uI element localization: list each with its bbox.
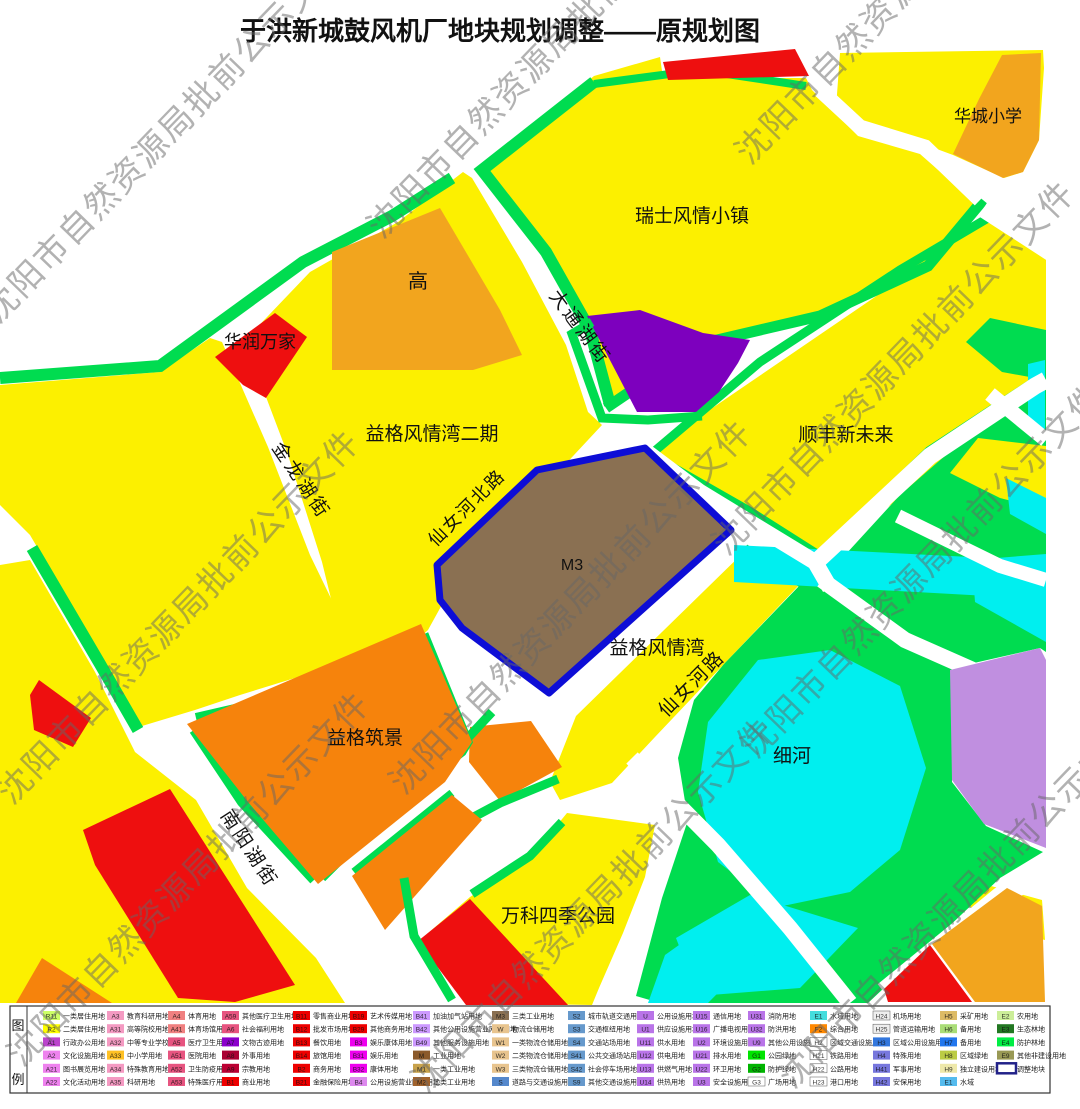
svg-text:机场用地: 机场用地 bbox=[893, 1012, 921, 1021]
svg-text:备用地: 备用地 bbox=[960, 1025, 981, 1034]
svg-text:图书展览用地: 图书展览用地 bbox=[63, 1064, 105, 1073]
svg-text:A6: A6 bbox=[227, 1027, 235, 1034]
svg-text:城市轨道交通用地: 城市轨道交通用地 bbox=[588, 1012, 644, 1021]
svg-text:零售商业用地: 零售商业用地 bbox=[313, 1012, 355, 1021]
svg-text:医院用地: 医院用地 bbox=[188, 1051, 216, 1060]
svg-text:港口用地: 港口用地 bbox=[830, 1078, 858, 1087]
svg-text:社会福利用地: 社会福利用地 bbox=[242, 1025, 284, 1034]
svg-text:S41: S41 bbox=[571, 1053, 583, 1060]
svg-text:金融保险用地: 金融保险用地 bbox=[313, 1078, 355, 1087]
svg-text:B3: B3 bbox=[355, 1040, 363, 1047]
svg-text:G2: G2 bbox=[752, 1066, 761, 1073]
svg-text:U11: U11 bbox=[640, 1040, 652, 1047]
svg-text:公共交通场站用地: 公共交通场站用地 bbox=[588, 1051, 644, 1060]
svg-text:E4: E4 bbox=[1002, 1040, 1010, 1047]
svg-text:细河: 细河 bbox=[773, 745, 811, 767]
svg-text:A2: A2 bbox=[48, 1053, 56, 1060]
svg-text:其他非建设用地: 其他非建设用地 bbox=[1017, 1051, 1066, 1060]
svg-text:独立建设用地: 独立建设用地 bbox=[960, 1064, 1002, 1073]
svg-text:U: U bbox=[643, 1014, 648, 1021]
svg-text:交通站场用地: 交通站场用地 bbox=[588, 1038, 630, 1047]
svg-text:B2: B2 bbox=[298, 1066, 306, 1073]
svg-text:U2: U2 bbox=[697, 1040, 706, 1047]
svg-text:U9: U9 bbox=[752, 1040, 761, 1047]
svg-text:A4: A4 bbox=[173, 1014, 181, 1021]
svg-text:华润万家: 华润万家 bbox=[224, 332, 296, 352]
svg-text:W1: W1 bbox=[496, 1040, 506, 1047]
svg-text:采矿用地: 采矿用地 bbox=[960, 1012, 988, 1021]
svg-text:B32: B32 bbox=[353, 1066, 365, 1073]
svg-text:A31: A31 bbox=[110, 1027, 122, 1034]
svg-text:B12: B12 bbox=[296, 1027, 308, 1034]
svg-text:U3: U3 bbox=[697, 1080, 706, 1087]
svg-text:S4: S4 bbox=[573, 1040, 581, 1047]
svg-text:餐饮用地: 餐饮用地 bbox=[313, 1038, 341, 1047]
svg-text:B19: B19 bbox=[353, 1014, 365, 1021]
svg-text:B4: B4 bbox=[355, 1080, 363, 1087]
svg-text:W2: W2 bbox=[496, 1053, 506, 1060]
svg-text:商业用地: 商业用地 bbox=[242, 1078, 270, 1087]
svg-text:E2: E2 bbox=[1002, 1014, 1010, 1021]
svg-text:H8: H8 bbox=[944, 1053, 953, 1060]
svg-text:U21: U21 bbox=[696, 1053, 708, 1060]
svg-text:A51: A51 bbox=[171, 1053, 183, 1060]
svg-text:U31: U31 bbox=[751, 1014, 763, 1021]
svg-text:A41: A41 bbox=[171, 1027, 183, 1034]
svg-text:B13: B13 bbox=[296, 1040, 308, 1047]
svg-text:H41: H41 bbox=[876, 1066, 888, 1073]
svg-text:H23: H23 bbox=[813, 1080, 825, 1087]
svg-text:B1: B1 bbox=[227, 1080, 235, 1087]
svg-text:三类工业用地: 三类工业用地 bbox=[512, 1012, 554, 1021]
svg-text:调整地块: 调整地块 bbox=[1017, 1064, 1045, 1073]
svg-text:B21: B21 bbox=[296, 1080, 308, 1087]
svg-text:物流仓储用地: 物流仓储用地 bbox=[512, 1025, 554, 1034]
svg-text:文物古迹用地: 文物古迹用地 bbox=[242, 1038, 284, 1047]
svg-text:高等院校用地: 高等院校用地 bbox=[127, 1025, 169, 1034]
svg-text:供应设施用地: 供应设施用地 bbox=[657, 1025, 699, 1034]
svg-text:供水用地: 供水用地 bbox=[657, 1038, 685, 1047]
svg-text:H25: H25 bbox=[876, 1027, 888, 1034]
svg-text:B41: B41 bbox=[416, 1014, 428, 1021]
svg-text:A34: A34 bbox=[110, 1066, 122, 1073]
svg-text:其他交通设施用地: 其他交通设施用地 bbox=[588, 1078, 644, 1087]
svg-text:B29: B29 bbox=[353, 1027, 365, 1034]
svg-text:教育科研用地: 教育科研用地 bbox=[127, 1012, 169, 1021]
svg-text:A3: A3 bbox=[112, 1014, 120, 1021]
svg-text:生态林地: 生态林地 bbox=[1017, 1025, 1045, 1034]
svg-text:E9: E9 bbox=[1002, 1053, 1010, 1060]
svg-text:艺术传媒用地: 艺术传媒用地 bbox=[370, 1012, 412, 1021]
svg-text:U22: U22 bbox=[696, 1066, 708, 1073]
svg-text:U16: U16 bbox=[696, 1027, 708, 1034]
svg-text:U12: U12 bbox=[640, 1053, 652, 1060]
svg-text:管道运输用地: 管道运输用地 bbox=[893, 1025, 935, 1034]
svg-text:A21: A21 bbox=[46, 1066, 58, 1073]
svg-text:S2: S2 bbox=[573, 1014, 581, 1021]
svg-text:三类物流仓储用地: 三类物流仓储用地 bbox=[512, 1064, 568, 1073]
svg-text:A33: A33 bbox=[110, 1053, 122, 1060]
svg-text:E3: E3 bbox=[1002, 1027, 1010, 1034]
svg-text:A5: A5 bbox=[173, 1040, 181, 1047]
svg-text:A7: A7 bbox=[227, 1040, 235, 1047]
svg-text:供燃气用地: 供燃气用地 bbox=[657, 1064, 692, 1073]
svg-text:区域绿地: 区域绿地 bbox=[960, 1051, 988, 1060]
svg-text:例: 例 bbox=[11, 1072, 24, 1087]
svg-text:科研用地: 科研用地 bbox=[127, 1078, 155, 1087]
svg-text:商务用地: 商务用地 bbox=[313, 1064, 341, 1073]
svg-text:H9: H9 bbox=[944, 1066, 953, 1073]
svg-text:宗教用地: 宗教用地 bbox=[242, 1064, 270, 1073]
svg-text:娱乐康体用地: 娱乐康体用地 bbox=[370, 1038, 412, 1047]
svg-text:A52: A52 bbox=[171, 1066, 183, 1073]
svg-text:供电用地: 供电用地 bbox=[657, 1051, 685, 1060]
svg-text:A35: A35 bbox=[110, 1080, 122, 1087]
svg-text:A59: A59 bbox=[225, 1014, 237, 1021]
svg-text:H4: H4 bbox=[877, 1053, 886, 1060]
svg-text:公用设施用地: 公用设施用地 bbox=[657, 1012, 699, 1021]
svg-text:通信用地: 通信用地 bbox=[713, 1012, 741, 1021]
svg-text:H24: H24 bbox=[876, 1014, 888, 1021]
svg-text:备用地: 备用地 bbox=[960, 1038, 981, 1047]
svg-text:水域: 水域 bbox=[960, 1078, 974, 1087]
svg-text:U15: U15 bbox=[696, 1014, 708, 1021]
svg-text:H6: H6 bbox=[944, 1027, 953, 1034]
svg-text:B14: B14 bbox=[296, 1053, 308, 1060]
svg-text:消防用地: 消防用地 bbox=[768, 1012, 796, 1021]
svg-text:外事用地: 外事用地 bbox=[242, 1051, 270, 1060]
svg-text:高: 高 bbox=[408, 270, 428, 293]
svg-text:G1: G1 bbox=[752, 1053, 761, 1060]
svg-text:H42: H42 bbox=[876, 1080, 888, 1087]
svg-text:文化设施用地: 文化设施用地 bbox=[63, 1051, 105, 1060]
svg-text:A53: A53 bbox=[171, 1080, 183, 1087]
svg-text:社会停车场用地: 社会停车场用地 bbox=[588, 1064, 637, 1073]
svg-text:瑞士风情小镇: 瑞士风情小镇 bbox=[635, 205, 749, 227]
svg-text:娱乐用地: 娱乐用地 bbox=[370, 1051, 398, 1060]
svg-text:S42: S42 bbox=[571, 1066, 583, 1073]
svg-text:S3: S3 bbox=[573, 1027, 581, 1034]
svg-text:于洪新城鼓风机厂地块规划调整——原规划图: 于洪新城鼓风机厂地块规划调整——原规划图 bbox=[240, 16, 760, 46]
svg-text:交通枢纽用地: 交通枢纽用地 bbox=[588, 1025, 630, 1034]
svg-text:特殊教育用地: 特殊教育用地 bbox=[127, 1064, 169, 1073]
svg-text:康体用地: 康体用地 bbox=[370, 1064, 398, 1073]
svg-text:防洪用地: 防洪用地 bbox=[768, 1025, 796, 1034]
svg-text:环卫用地: 环卫用地 bbox=[713, 1064, 741, 1073]
svg-text:B31: B31 bbox=[353, 1053, 365, 1060]
svg-text:特殊用地: 特殊用地 bbox=[893, 1051, 921, 1060]
svg-text:道路与交通设施用地: 道路与交通设施用地 bbox=[512, 1078, 575, 1087]
svg-text:S9: S9 bbox=[573, 1080, 581, 1087]
svg-text:H7: H7 bbox=[944, 1040, 953, 1047]
svg-text:一类物流仓储用地: 一类物流仓储用地 bbox=[512, 1038, 568, 1047]
svg-text:公路用地: 公路用地 bbox=[830, 1064, 858, 1073]
svg-text:排水用地: 排水用地 bbox=[713, 1051, 741, 1060]
svg-text:H3: H3 bbox=[877, 1040, 886, 1047]
svg-text:益格风情湾: 益格风情湾 bbox=[609, 637, 704, 659]
svg-text:批发市场用地: 批发市场用地 bbox=[313, 1025, 355, 1034]
svg-text:U14: U14 bbox=[640, 1080, 652, 1087]
svg-text:G3: G3 bbox=[752, 1080, 761, 1087]
svg-text:军事用地: 军事用地 bbox=[893, 1064, 921, 1073]
svg-text:W3: W3 bbox=[496, 1066, 506, 1073]
svg-text:U1: U1 bbox=[641, 1027, 650, 1034]
svg-text:农用地: 农用地 bbox=[1017, 1012, 1038, 1021]
svg-text:供热用地: 供热用地 bbox=[657, 1078, 685, 1087]
svg-text:B11: B11 bbox=[296, 1014, 307, 1021]
svg-text:E1: E1 bbox=[945, 1080, 953, 1087]
svg-text:华城小学: 华城小学 bbox=[954, 107, 1022, 126]
svg-text:H5: H5 bbox=[944, 1014, 953, 1021]
svg-text:二类物流仓储用地: 二类物流仓储用地 bbox=[512, 1051, 568, 1060]
svg-text:旅馆用地: 旅馆用地 bbox=[313, 1051, 341, 1060]
svg-text:U13: U13 bbox=[640, 1066, 652, 1073]
svg-text:防护林地: 防护林地 bbox=[1017, 1038, 1045, 1047]
svg-text:U32: U32 bbox=[751, 1027, 763, 1034]
svg-text:安保用地: 安保用地 bbox=[893, 1078, 921, 1087]
svg-text:S: S bbox=[498, 1080, 503, 1087]
svg-text:A8: A8 bbox=[227, 1053, 235, 1060]
svg-text:文化活动用地: 文化活动用地 bbox=[63, 1078, 105, 1087]
svg-text:A22: A22 bbox=[46, 1080, 58, 1087]
svg-text:其他商务用地: 其他商务用地 bbox=[370, 1025, 412, 1034]
svg-text:体育用地: 体育用地 bbox=[188, 1012, 216, 1021]
svg-text:A9: A9 bbox=[227, 1066, 235, 1073]
svg-text:行政办公用地: 行政办公用地 bbox=[63, 1038, 105, 1047]
svg-text:B42: B42 bbox=[416, 1027, 428, 1034]
svg-text:中小学用地: 中小学用地 bbox=[127, 1051, 162, 1060]
svg-text:其他医疗卫生用地: 其他医疗卫生用地 bbox=[242, 1012, 298, 1021]
svg-text:A32: A32 bbox=[110, 1040, 122, 1047]
svg-text:B49: B49 bbox=[416, 1040, 428, 1047]
svg-text:益格风情湾二期: 益格风情湾二期 bbox=[365, 423, 498, 445]
